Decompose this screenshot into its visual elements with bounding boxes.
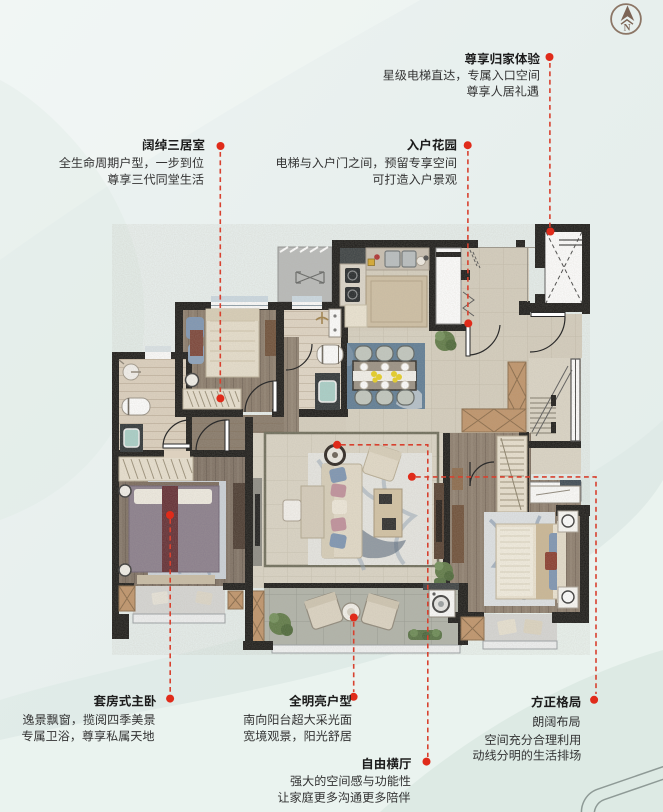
- svg-text:N: N: [624, 24, 631, 34]
